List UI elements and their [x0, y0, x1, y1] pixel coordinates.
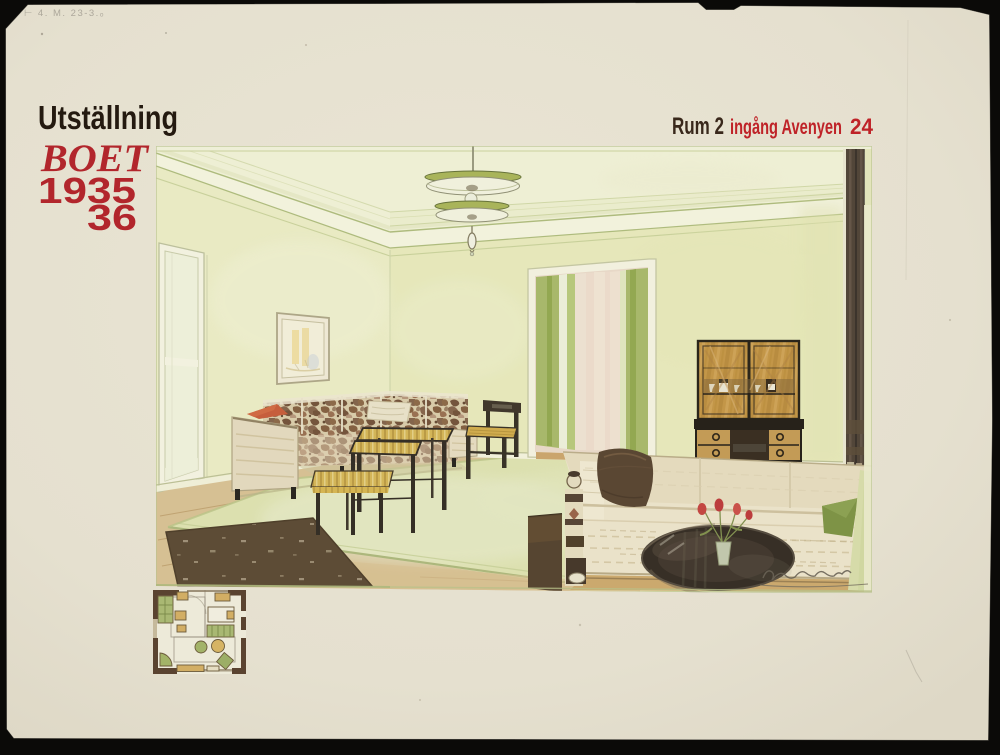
svg-text:ingång Avenyen: ingång Avenyen — [730, 116, 842, 139]
svg-text:24: 24 — [850, 114, 874, 139]
svg-text:Rum 2: Rum 2 — [672, 113, 724, 140]
svg-text:Utställning: Utställning — [38, 99, 178, 136]
svg-text:36: 36 — [87, 197, 137, 238]
svg-text:⊢ 4. M. 23-3.ₒ: ⊢ 4. M. 23-3.ₒ — [24, 8, 105, 19]
